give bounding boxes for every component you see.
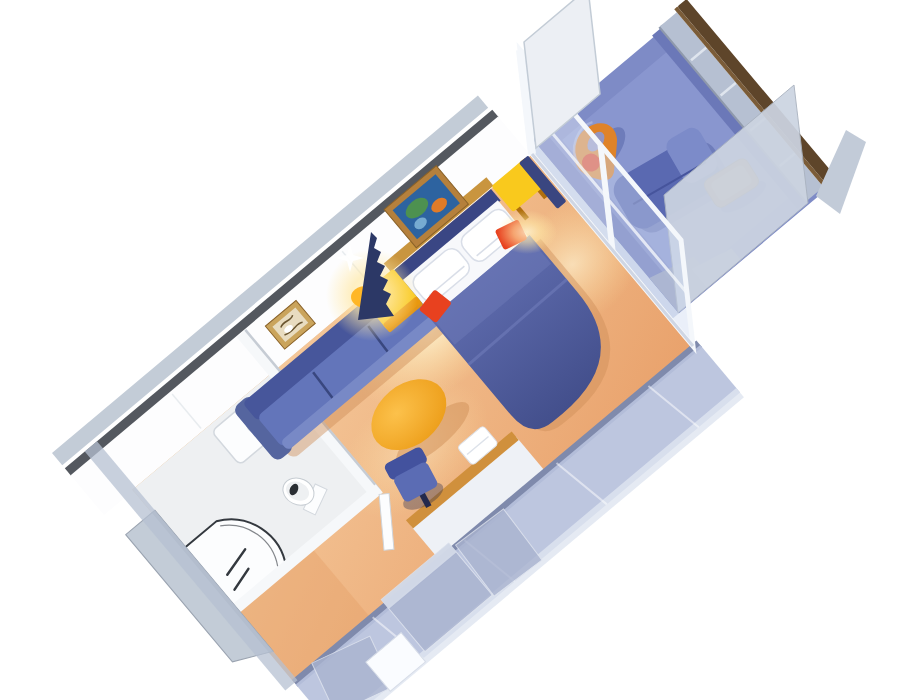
doorway-glow (497, 210, 557, 254)
stateroom-rendering (0, 0, 900, 700)
stateroom-svg (0, 0, 900, 700)
